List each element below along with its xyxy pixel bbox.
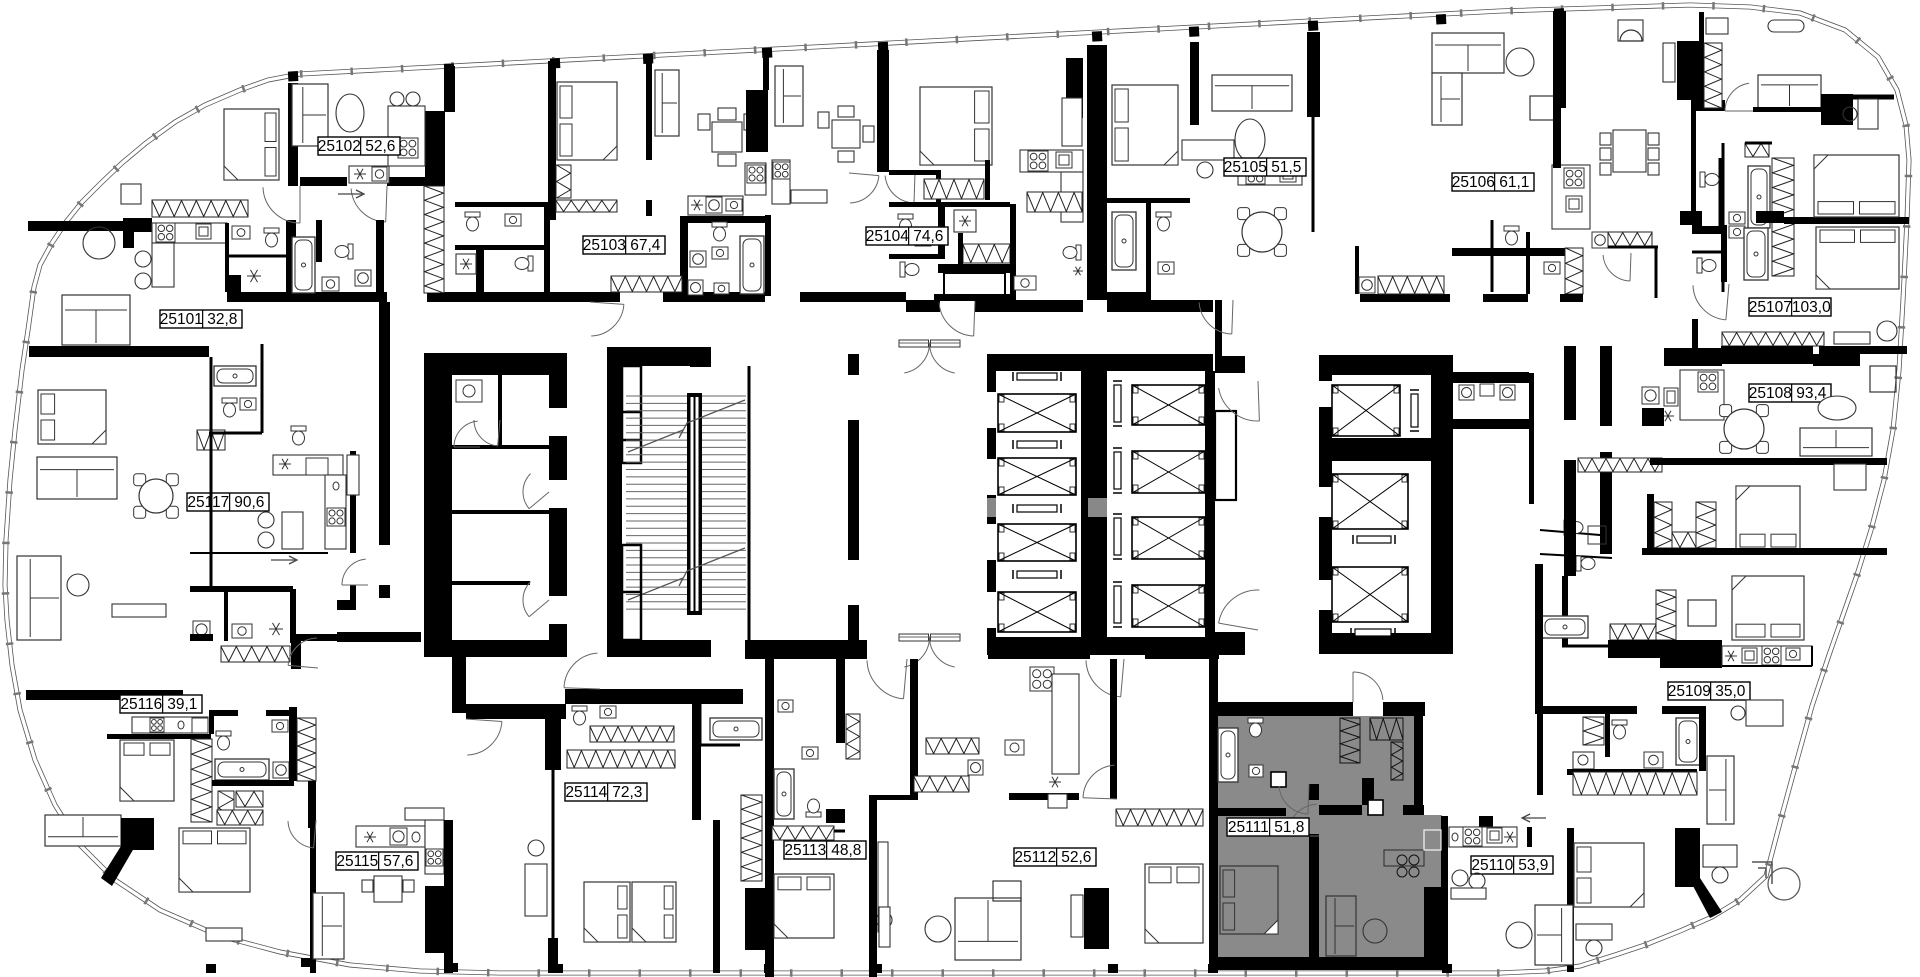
svg-text:32,8: 32,8 bbox=[207, 311, 237, 328]
svg-text:25107: 25107 bbox=[1749, 299, 1792, 316]
svg-text:51,8: 51,8 bbox=[1274, 819, 1304, 836]
svg-text:25111: 25111 bbox=[1228, 819, 1269, 836]
svg-text:52,6: 52,6 bbox=[1061, 849, 1091, 866]
svg-text:25108: 25108 bbox=[1749, 385, 1792, 402]
svg-text:52,6: 52,6 bbox=[365, 138, 395, 155]
svg-text:35,0: 35,0 bbox=[1715, 683, 1746, 700]
svg-text:25116: 25116 bbox=[120, 696, 162, 713]
svg-text:39,1: 39,1 bbox=[167, 696, 197, 713]
svg-text:61,1: 61,1 bbox=[1499, 174, 1529, 191]
svg-text:25103: 25103 bbox=[583, 237, 626, 254]
svg-text:25113: 25113 bbox=[784, 842, 826, 859]
svg-text:53,9: 53,9 bbox=[1518, 857, 1548, 874]
svg-text:25115: 25115 bbox=[336, 853, 378, 870]
svg-text:103,0: 103,0 bbox=[1792, 299, 1831, 316]
svg-text:25112: 25112 bbox=[1014, 849, 1056, 866]
svg-text:25114: 25114 bbox=[565, 784, 607, 801]
svg-text:57,6: 57,6 bbox=[383, 853, 413, 870]
svg-text:72,3: 72,3 bbox=[612, 784, 642, 801]
svg-text:93,4: 93,4 bbox=[1796, 385, 1827, 402]
svg-text:25101: 25101 bbox=[160, 311, 203, 328]
svg-text:25102: 25102 bbox=[318, 138, 361, 155]
svg-text:25110: 25110 bbox=[1471, 857, 1513, 874]
svg-text:90,6: 90,6 bbox=[234, 494, 264, 511]
svg-text:25117: 25117 bbox=[187, 494, 229, 511]
svg-text:25106: 25106 bbox=[1452, 174, 1495, 191]
svg-text:74,6: 74,6 bbox=[913, 228, 943, 245]
svg-text:25105: 25105 bbox=[1224, 159, 1267, 176]
svg-text:48,8: 48,8 bbox=[831, 842, 861, 859]
svg-text:51,5: 51,5 bbox=[1271, 159, 1301, 176]
svg-text:67,4: 67,4 bbox=[630, 237, 661, 254]
svg-text:25109: 25109 bbox=[1668, 683, 1711, 700]
svg-text:25104: 25104 bbox=[866, 228, 909, 245]
